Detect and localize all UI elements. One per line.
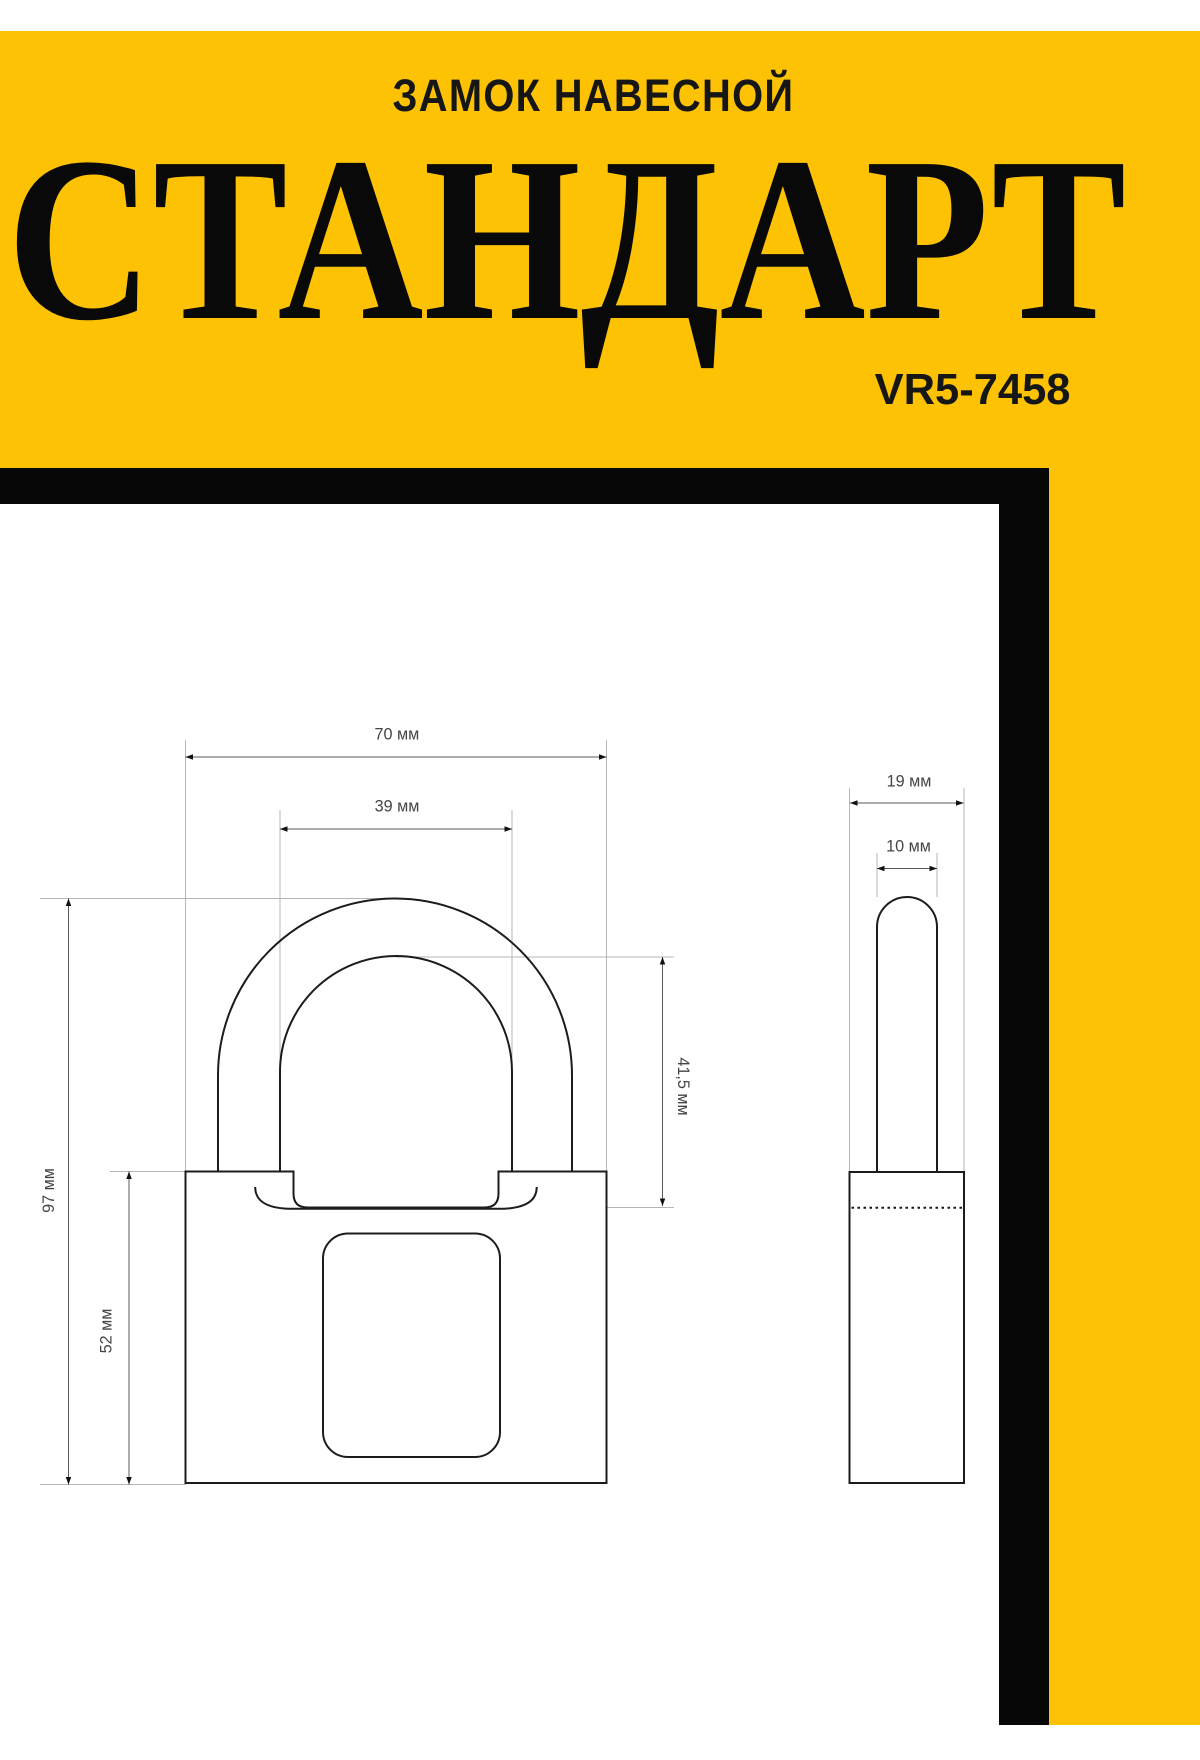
svg-text:19 мм: 19 мм <box>887 773 932 791</box>
svg-text:52 мм: 52 мм <box>98 1309 116 1354</box>
svg-text:10 мм: 10 мм <box>886 837 931 855</box>
svg-text:97 мм: 97 мм <box>40 1168 58 1213</box>
svg-text:41,5 мм: 41,5 мм <box>674 1057 692 1115</box>
svg-text:70 мм: 70 мм <box>375 726 420 744</box>
svg-text:39 мм: 39 мм <box>375 798 420 816</box>
